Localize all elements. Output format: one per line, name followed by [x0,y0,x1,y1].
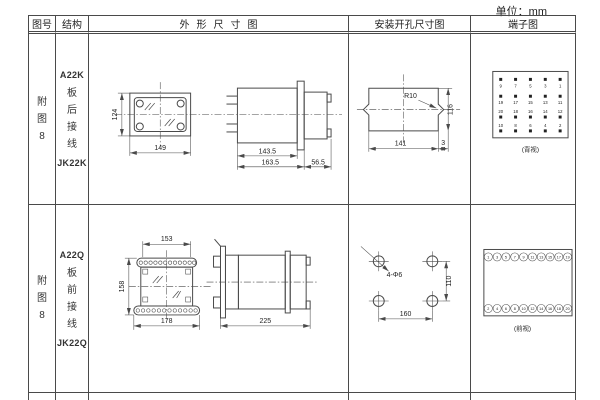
svg-text:18: 18 [513,109,518,114]
dim-height: 158 [119,280,126,292]
svg-text:8: 8 [514,306,516,310]
svg-text:18: 18 [557,306,561,310]
svg-text:2: 2 [559,122,562,127]
outline-cell-r1: 124 149 [89,34,349,205]
svg-text:4: 4 [496,306,498,310]
svg-text:11: 11 [558,100,563,105]
svg-text:5: 5 [505,255,507,259]
relay-code-r1: JK22K [57,158,87,168]
terminal-screws-bottom: 2468101214161820 [484,304,571,312]
svg-text:14: 14 [543,109,548,114]
terminal-pin-numbers: 97531 1917151311 2018161412 108642 [498,83,563,128]
dim-depth: 225 [259,317,271,324]
svg-text:15: 15 [548,255,552,259]
svg-text:6: 6 [505,306,507,310]
svg-text:20: 20 [565,306,569,310]
svg-text:19: 19 [565,255,569,259]
mounting-hole-view-jk22q: 4-Φ6 160 110 [361,246,453,321]
dim-hole-width: 141 [395,140,407,147]
radius-callout: R10 [404,93,417,100]
svg-text:10: 10 [498,122,503,127]
dim-hole-spacing-v: 110 [446,275,453,286]
terminal-cell-r1: 97531 1917151311 2018161412 108642 (背视) [471,34,576,205]
dim-depth-total: 163.5 [262,159,280,166]
svg-text:1: 1 [487,255,489,259]
svg-text:10: 10 [522,306,526,310]
terminal-diagram-rear: 97531 1917151311 2018161412 108642 (背视) [471,34,575,205]
header-mounting: 安装开孔尺寸图 [349,16,471,34]
header-structure: 结构 [56,16,89,34]
dim-hole-spacing-h: 160 [400,310,412,317]
figure-label-r1: 附图8 [36,94,49,145]
svg-text:2: 2 [487,306,489,310]
terminal-strip-top [139,260,196,263]
svg-text:19: 19 [498,100,503,105]
svg-text:1: 1 [559,83,562,88]
view-label-front: (前视) [514,323,531,332]
header-outline: 外形尺寸图 [89,16,349,34]
side-view-jk22k: 143.5 163.5 56.5 [226,81,331,170]
spec-table: 图号 结构 外形尺寸图 安装开孔尺寸图 端子图 附图8 A22K 板后接线 JK… [28,15,576,400]
figure-label-r2: 附图8 [36,273,49,324]
terminal-screws-top: 135791113151719 [484,252,571,260]
svg-text:9: 9 [500,83,503,88]
relay-dimension-sheet: 单位：mm 图号 结构 外形尺寸图 安装开孔尺寸图 端子图 附图8 A22K 板… [0,0,600,400]
svg-text:12: 12 [530,306,534,310]
header-figure: 图号 [29,16,56,34]
structure-cell-r3 [56,393,89,400]
outline-drawing-jk22q: 153 158 178 [89,205,348,393]
svg-text:7: 7 [514,83,517,88]
front-view-jk22q: 153 158 178 [119,236,211,330]
svg-text:3: 3 [496,255,498,259]
figure-cell-r2: 附图8 [29,205,56,393]
dim-depth-rear: 56.5 [311,159,325,166]
terminal-cell-r3 [471,393,576,400]
outline-cell-r2: 153 158 178 [89,205,349,393]
dim-offset: 3 [441,139,445,146]
wiring-type-r2: 板前接线 [66,265,79,333]
terminal-diagram-front: 135791113151719 2468101214161820 (前视) [471,205,575,393]
outline-drawing-jk22k: 124 149 [89,34,348,205]
dim-height: 124 [112,108,119,120]
svg-text:7: 7 [514,255,516,259]
svg-text:16: 16 [528,109,533,114]
svg-text:11: 11 [530,255,534,259]
dim-width: 149 [154,144,166,151]
svg-text:4: 4 [544,122,547,127]
svg-text:20: 20 [498,109,503,114]
mounting-drawing-jk22q: 4-Φ6 160 110 [349,205,470,393]
mounting-drawing-jk22k: R10 141 3 116 [349,34,470,205]
relay-code-r2: JK22Q [57,338,87,348]
structure-cell-r2: A22Q 板前接线 JK22Q [56,205,89,393]
mounting-hole-view-jk22k: R10 141 3 116 [357,74,460,151]
side-view-jk22q: 225 [207,239,319,329]
dim-top-width: 153 [161,236,173,243]
mounting-cell-r2: 4-Φ6 160 110 [349,205,471,393]
svg-text:5: 5 [529,83,532,88]
svg-text:14: 14 [539,306,543,310]
svg-text:13: 13 [539,255,543,259]
structure-cell-r1: A22K 板后接线 JK22K [56,34,89,205]
model-code-r1: A22K [60,70,84,80]
mounting-cell-r3 [349,393,471,400]
model-code-r2: A22Q [60,250,85,260]
svg-text:6: 6 [529,122,532,127]
svg-text:9: 9 [523,255,525,259]
wiring-type-r1: 板后接线 [66,85,79,153]
outline-cell-r3 [89,393,349,400]
figure-cell-r3 [29,393,56,400]
svg-text:12: 12 [558,109,563,114]
dim-bottom-width: 178 [161,317,173,324]
header-terminal: 端子图 [471,16,576,34]
svg-text:8: 8 [514,122,517,127]
svg-text:17: 17 [557,255,561,259]
svg-text:16: 16 [548,306,552,310]
terminal-cell-r2: 135791113151719 2468101214161820 (前视) [471,205,576,393]
svg-text:15: 15 [528,100,533,105]
svg-text:3: 3 [544,83,547,88]
front-view-jk22k: 124 149 [112,82,191,156]
svg-text:17: 17 [513,100,518,105]
dim-depth-body: 143.5 [259,148,277,155]
view-label-rear: (背视) [522,144,539,153]
mounting-cell-r1: R10 141 3 116 [349,34,471,205]
figure-cell-r1: 附图8 [29,34,56,205]
svg-text:13: 13 [543,100,548,105]
hole-callout: 4-Φ6 [387,272,403,279]
dim-hole-height: 116 [448,103,455,114]
